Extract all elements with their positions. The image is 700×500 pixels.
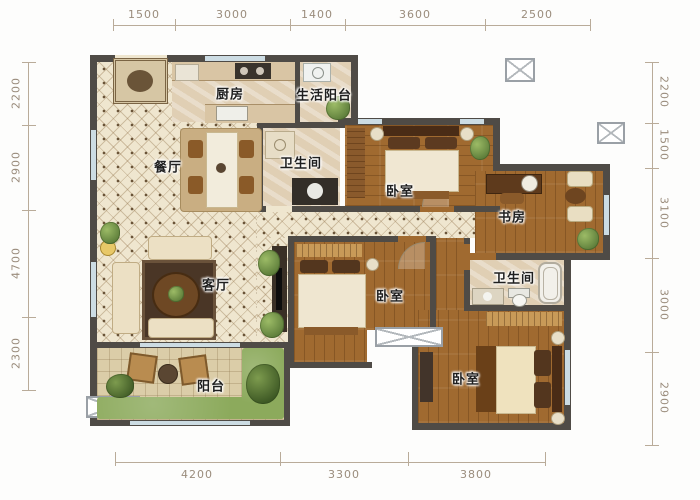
wall-hall-top — [257, 206, 500, 212]
bed3-dresser — [420, 352, 433, 402]
label-bath1: 卫生间 — [280, 153, 322, 172]
dim-right-1: 2200 — [658, 76, 671, 108]
wall-bed2-right — [430, 236, 436, 330]
bed2-pillow-a — [300, 260, 328, 273]
dim-left-1: 2200 — [10, 77, 23, 109]
floor-corridor — [436, 238, 464, 310]
window-dining — [91, 130, 96, 180]
wall-outer-left — [90, 55, 97, 426]
kitchen-sink — [216, 106, 248, 121]
plant-balcony-1 — [106, 374, 134, 398]
chaise — [148, 318, 214, 338]
window-balcony-rail — [130, 421, 250, 425]
dim-top-4: 3600 — [399, 8, 431, 21]
ac-platform-study — [597, 122, 625, 144]
dim-right-3: 3100 — [658, 197, 671, 229]
bed3-duvet — [496, 346, 536, 414]
toilet — [508, 288, 530, 298]
bed2-pillow-b — [332, 260, 360, 273]
plant-living-1 — [258, 250, 280, 276]
dim-top-2: 3000 — [216, 8, 248, 21]
dining-chair-1 — [188, 140, 203, 158]
wall-lb-right — [351, 62, 358, 122]
wall-bath2-bottom — [464, 305, 564, 311]
window-living — [91, 262, 96, 317]
label-bath2: 卫生间 — [493, 268, 535, 287]
dim-bottom-1: 4200 — [181, 468, 213, 481]
label-bedroom3: 卧室 — [452, 369, 480, 388]
bed1-wardrobe — [347, 128, 365, 198]
wall-bed2-bottom — [288, 362, 372, 368]
label-kitchen: 厨房 — [216, 84, 244, 103]
label-study: 书房 — [498, 207, 526, 226]
dining-chair-4 — [239, 176, 254, 194]
ac-platform-top — [505, 58, 535, 82]
sofa-top — [148, 236, 212, 260]
bed3-nightstand-a — [551, 331, 565, 345]
sofa-left — [112, 262, 140, 334]
dining-chair-2 — [188, 176, 203, 194]
dim-bottom-2: 3300 — [328, 468, 360, 481]
study-side-table — [565, 188, 586, 204]
bed3-nightstand-b — [551, 412, 565, 425]
bed1-pillow-a — [388, 137, 420, 149]
door-bath2-gap — [464, 244, 470, 270]
bath1-vanity — [292, 178, 338, 205]
bed1-nightstand-l — [370, 127, 384, 141]
window-study — [604, 195, 609, 235]
dim-top-1: 1500 — [128, 8, 160, 21]
bed2-nightstand — [366, 258, 379, 271]
label-living: 客厅 — [202, 275, 230, 294]
bed3-pillow-a — [534, 350, 551, 376]
door-bath1-gap — [266, 206, 292, 212]
window-balcony-slider — [140, 343, 240, 347]
bed2-foot-bench — [304, 327, 358, 335]
bed2-duvet — [298, 274, 366, 328]
dim-left-3: 4700 — [10, 247, 23, 279]
window-kitchen — [205, 56, 265, 61]
bath2-sink — [472, 288, 504, 305]
plant-balcony-2 — [246, 364, 280, 404]
dim-top-3: 1400 — [301, 8, 333, 21]
dim-right-2: 1500 — [658, 129, 671, 161]
label-bedroom1: 卧室 — [386, 181, 414, 200]
dining-centerpiece — [216, 163, 226, 173]
label-bedroom2: 卧室 — [376, 286, 404, 305]
bed3-headboard — [552, 346, 562, 412]
window-bed1-a — [358, 119, 382, 124]
label-living-balcony: 生活阳台 — [296, 85, 352, 104]
coffee-table — [152, 272, 200, 318]
study-armchair-1 — [567, 171, 593, 187]
bed1-nightstand-r — [460, 127, 474, 141]
dim-right-4: 3000 — [658, 289, 671, 321]
dim-bottom-3: 3800 — [460, 468, 492, 481]
floor-hallway — [257, 212, 477, 238]
wall-bed3-bottom — [412, 423, 571, 430]
balcony-table — [158, 364, 178, 384]
stove — [235, 63, 271, 79]
bed1-headboard — [383, 126, 459, 136]
entry-rug — [113, 58, 168, 104]
bed3-pillow-b — [534, 382, 551, 408]
door-study-gap — [470, 253, 496, 260]
fridge — [175, 64, 199, 81]
window-bed3 — [565, 350, 570, 405]
dining-chair-3 — [239, 140, 254, 158]
dim-left-2: 2900 — [10, 151, 23, 183]
label-dining: 餐厅 — [154, 157, 182, 176]
dim-right-5: 2900 — [658, 382, 671, 414]
dim-left-4: 2300 — [10, 337, 23, 369]
washing-machine — [303, 63, 331, 82]
bathtub — [538, 262, 562, 304]
study-chair — [500, 193, 524, 204]
bed3-wardrobe — [486, 312, 562, 326]
dim-top-5: 2500 — [521, 8, 553, 21]
wall-balcony-right — [284, 342, 290, 426]
label-balcony: 阳台 — [197, 376, 225, 395]
floor-plan-canvas: 1500 3000 1400 3600 2500 4200 3300 3800 … — [0, 0, 700, 500]
bed2-wardrobe — [296, 244, 362, 257]
bay-window-box — [375, 327, 443, 347]
study-globe — [521, 175, 538, 192]
plant-study — [577, 228, 599, 250]
plant-dining-corner — [100, 222, 120, 244]
wall-study-top — [493, 164, 610, 171]
window-bed1-b — [460, 119, 484, 124]
plant-living-2 — [260, 312, 284, 338]
plant-bed1 — [470, 136, 490, 160]
bed1-pillow-b — [425, 137, 457, 149]
study-armchair-2 — [567, 206, 593, 222]
